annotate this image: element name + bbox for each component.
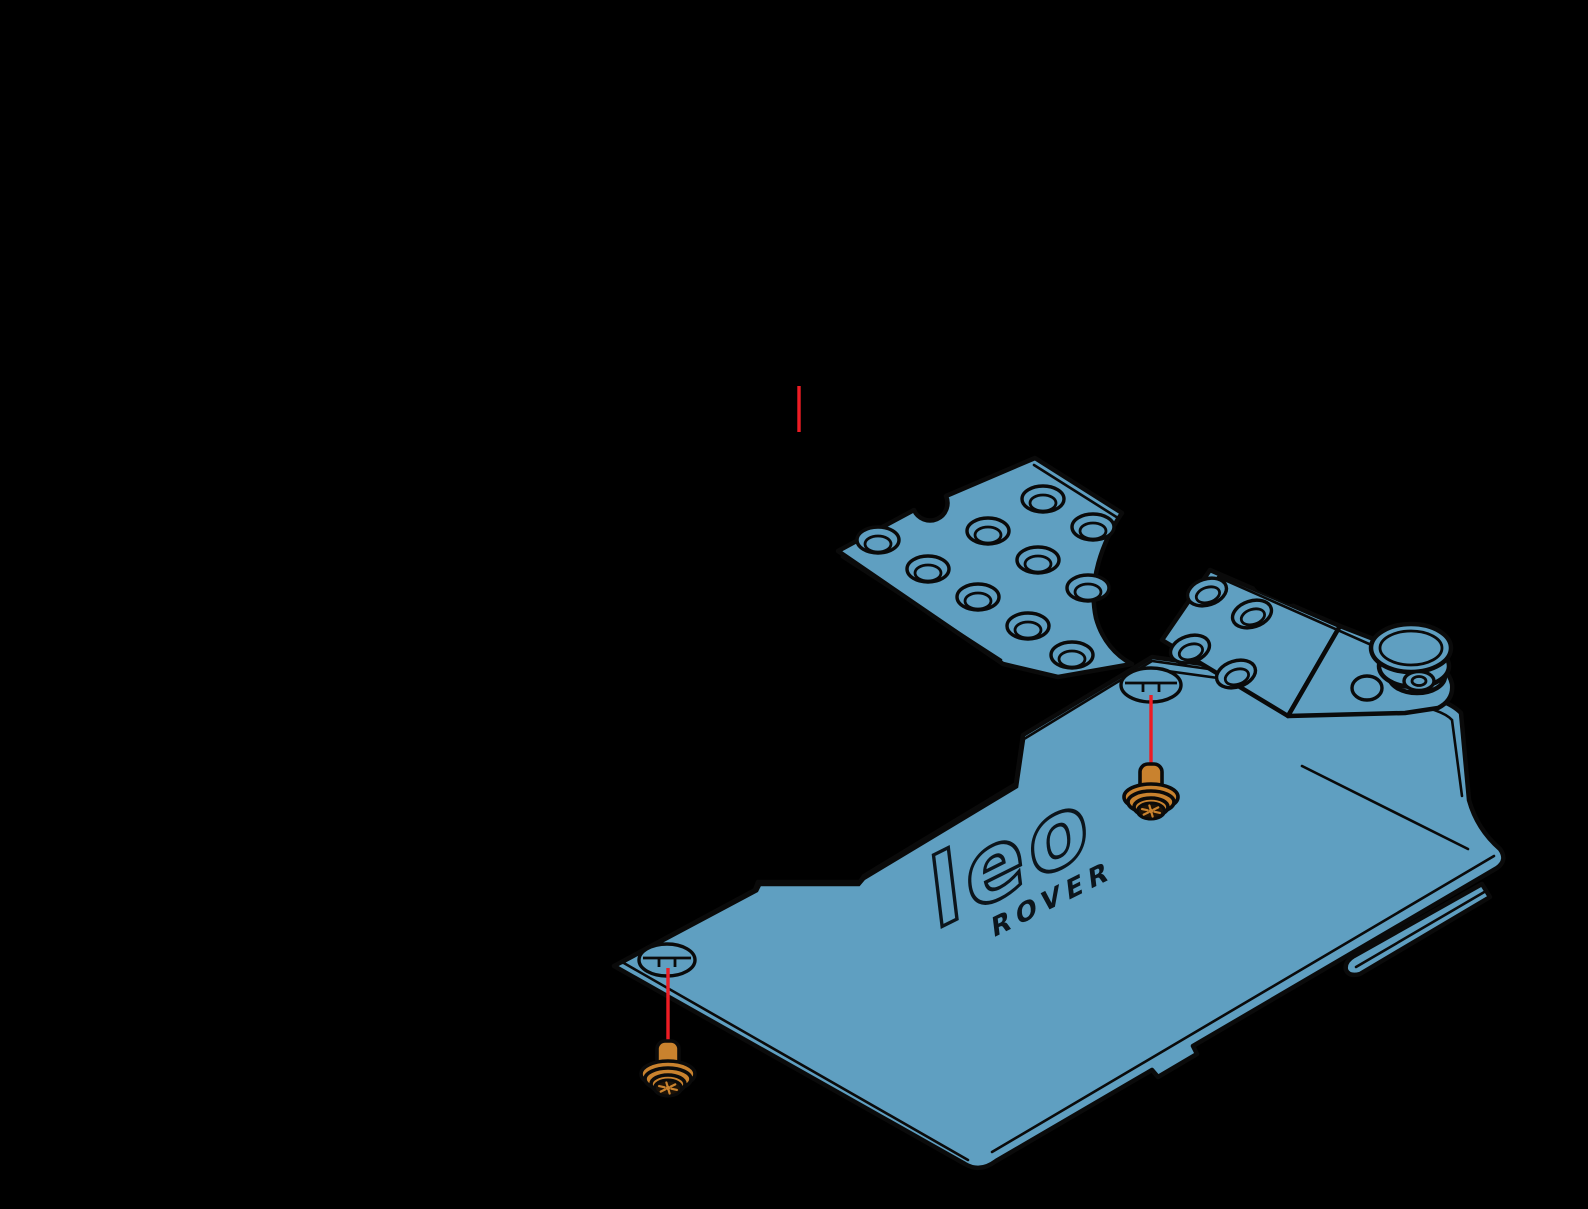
screw-torx-spoke <box>659 1086 665 1087</box>
roller-axle-ring <box>1404 672 1434 691</box>
countersunk-hole <box>907 556 949 582</box>
torx-screw <box>641 1041 695 1096</box>
screw-torx-center <box>666 1086 670 1090</box>
countersunk-hole <box>1072 514 1114 540</box>
screw-torx-spoke <box>1154 812 1160 813</box>
screw-torx-spoke <box>1152 813 1153 816</box>
bracket-round-hole <box>1352 676 1382 700</box>
screw-torx-center <box>1149 809 1153 813</box>
countersunk-hole <box>1067 575 1109 601</box>
perforated-plate-face <box>838 458 1132 677</box>
screw-torx-spoke <box>1142 809 1148 810</box>
assembly-diagram: leo ROVER <box>0 0 1588 1209</box>
screw-torx-spoke <box>666 1082 667 1085</box>
countersunk-hole <box>1007 613 1049 639</box>
countersunk-hole <box>1017 547 1059 573</box>
countersunk-hole <box>1022 486 1064 512</box>
cover-plate: leo ROVER <box>614 657 1503 1168</box>
countersunk-hole <box>957 584 999 610</box>
countersunk-hole <box>967 518 1009 544</box>
countersunk-hole <box>1051 642 1093 668</box>
screw-torx-spoke <box>669 1090 670 1093</box>
perforated-mounting-plate <box>838 458 1132 677</box>
cover-plate-face <box>614 657 1503 1168</box>
countersunk-hole <box>857 527 899 553</box>
screw-torx-spoke <box>671 1089 677 1090</box>
screw-torx-spoke <box>1149 805 1150 808</box>
